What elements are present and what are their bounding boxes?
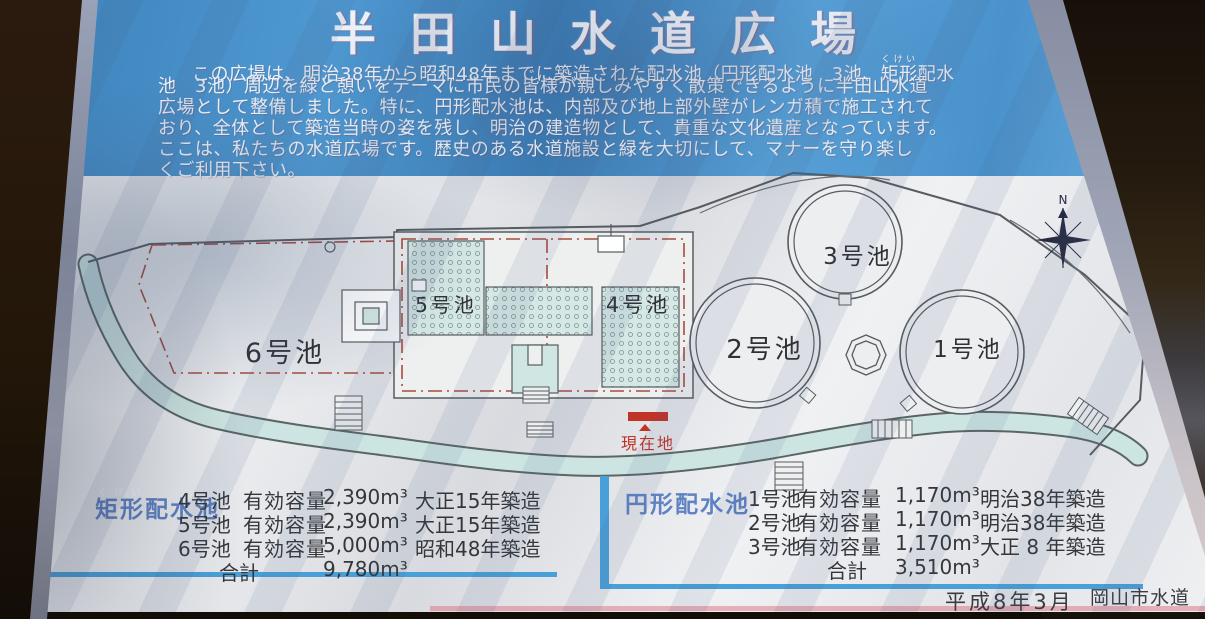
current-location-label: 現在地 [621,434,675,453]
pond-3-label: 3号池 [823,244,893,270]
pond-5-label: 5号池 [415,293,477,317]
total-value: 9,780m³ [323,557,397,581]
pond-4-label: 4号池 [606,293,670,317]
building-north [598,224,624,252]
stairs-compound-south [523,387,549,403]
total-label: 合計 [815,555,879,584]
table-row: 2号池 有効容量 1,170m³ 明治38年築造 [600,507,1160,531]
total-value: 3,510m³ [895,555,965,579]
table-row: 6号池 有効容量 5,000m³ 昭和48年築造 [95,533,565,557]
capacity-value: 1,170m³ [895,507,965,531]
capacity-value: 2,390m³ [323,485,397,509]
photo-of-information-sign: 半田山水道広場 この広場は、明治38年から昭和48年までに築造された配水池（円形… [0,0,1205,619]
pond-6-label: 6号池 [245,338,325,369]
site-map: 現在地 N 6号池 5号池 4号池 3号池 2号池 1号池 [50,168,1160,508]
table-row: 1号池 有効容量 1,170m³ 明治38年築造 [600,483,1160,507]
intro-line-1: この広場は、明治38年から昭和48年までに築造された配水池（円形配水池 3池、矩… [158,55,1058,76]
small-well [325,242,335,252]
intro-line-4: おり、全体として築造当時の姿を残し、明治の建造物として、貴重な文化遺産となってい… [158,118,1058,139]
building-south-valve-house [512,345,558,393]
table-row: 4号池 有効容量 2,390m³ 大正15年築造 [95,485,565,509]
rect-reservoir-table: 矩形くけい配水池 4号池 有効容量 2,390m³ 大正15年築造 5号池 有効… [95,480,565,600]
total-label: 合計 [207,557,271,586]
sign-date: 平成8年3月 [945,586,1074,616]
table-total-row: 合計 3,510m³ [600,555,1160,579]
table-total-row: 合計 9,780m³ [95,557,565,581]
current-location-marker: 現在地 [621,412,675,453]
pond-2-label: 2号池 [726,335,804,365]
intro-paragraph: この広場は、明治38年から昭和48年までに築造された配水池（円形配水池 3池、矩… [158,55,1058,181]
compass-north-label: N [1059,193,1068,207]
stairs-lower [527,422,553,437]
stairs-west [335,396,362,430]
capacity-value: 1,170m³ [895,483,965,507]
intro-line-5: ここは、私たちの水道広場です。歴史のある水道施設と緑を大切にして、マナーを守り楽… [158,139,1058,160]
compass-rose: N [1035,193,1091,268]
table-row: 5号池 有効容量 2,390m³ 大正15年築造 [95,509,565,533]
intro-line-3: 広場として整備しました。特に、円形配水池は、内部及び地上部外壁がレンガ積で施工さ… [158,97,1058,118]
building-west-double-square [342,290,400,342]
circle-reservoir-table: 円形配水池 1号池 有効容量 1,170m³ 明治38年築造 2号池 有効容量 … [600,478,1160,598]
stairs-east-plaza [872,420,912,438]
capacity-value: 1,170m³ [895,531,965,555]
pond-middle-basin [486,287,592,335]
capacity-value: 5,000m³ [323,533,397,557]
intro-line-2: 池 3池）周辺を緑と憩いをテーマに市民の皆様が親しみやすく散策できるように半田山… [158,76,1058,97]
capacity-value: 2,390m³ [323,509,397,533]
table-row: 3号池 有効容量 1,170m³ 大正 8 年築造 [600,531,1160,555]
sign-panel: 半田山水道広場 この広場は、明治38年から昭和48年までに築造された配水池（円形… [0,0,1205,619]
central-octagon-structure [846,335,886,375]
small-structure [412,280,426,291]
intro-ruby-furigana: くけい [881,55,918,65]
sign-bottom-edge-highlight [430,606,1205,611]
pond-1-label: 1号池 [933,337,1003,363]
